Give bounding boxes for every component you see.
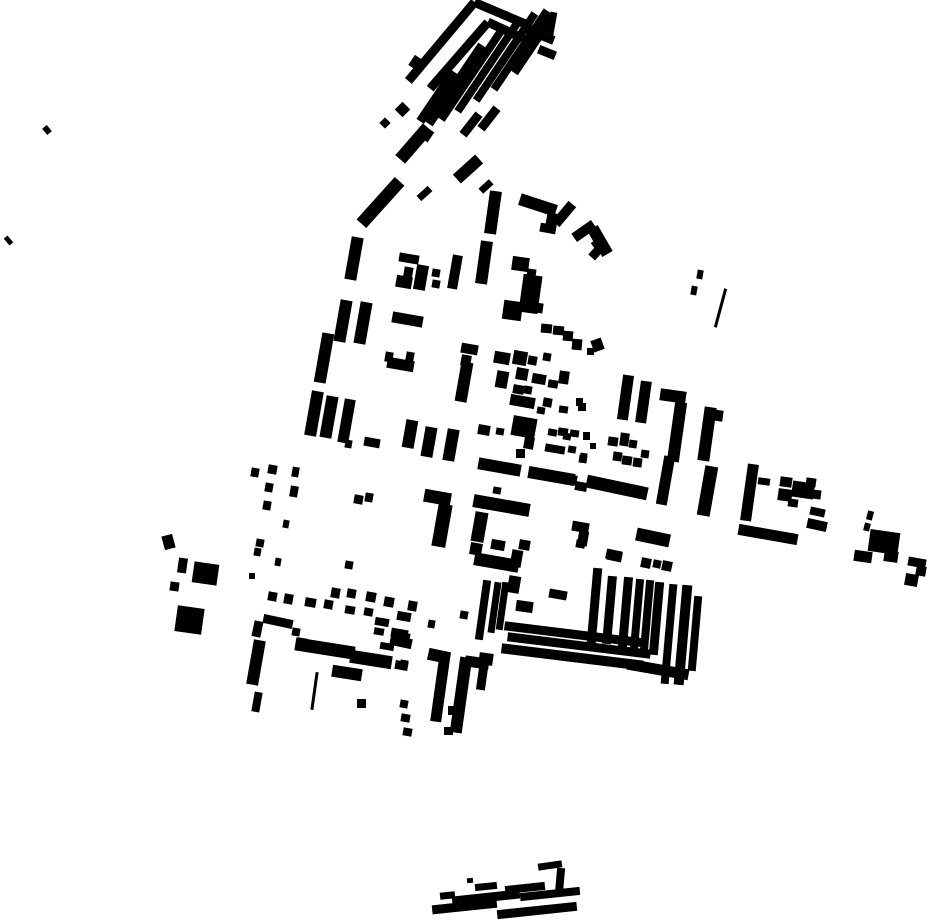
building-footprint	[512, 350, 528, 366]
building-footprint	[558, 370, 570, 384]
building-footprint	[448, 706, 457, 715]
building-footprint	[805, 477, 816, 487]
building-footprint	[779, 476, 792, 488]
building-footprint	[431, 268, 440, 277]
building-footprint	[621, 455, 632, 465]
building-footprint	[459, 610, 468, 619]
building-footprint	[283, 593, 294, 604]
building-footprint	[661, 560, 673, 572]
building-footprint	[559, 405, 569, 413]
building-footprint	[904, 573, 919, 587]
building-footprint	[518, 539, 531, 551]
building-footprint	[570, 429, 580, 437]
building-footprint	[383, 596, 395, 608]
building-footprint	[563, 331, 574, 342]
building-footprint	[444, 727, 453, 735]
building-footprint	[402, 727, 412, 736]
building-footprint	[542, 397, 552, 407]
building-footprint	[249, 573, 255, 579]
building-footprint	[523, 385, 532, 394]
building-footprint	[883, 550, 898, 563]
building-footprint	[510, 415, 537, 439]
building-footprint	[553, 326, 565, 336]
building-footprint	[523, 436, 535, 450]
building-footprint	[542, 352, 551, 361]
building-footprint	[323, 599, 333, 609]
building-footprint	[267, 591, 277, 601]
building-footprint	[400, 713, 410, 722]
building-footprint	[192, 561, 220, 585]
building-footprint	[512, 384, 524, 395]
building-footprint	[547, 379, 558, 389]
building-footprint	[365, 591, 377, 603]
building-footprint	[619, 432, 630, 446]
building-footprint	[557, 427, 568, 436]
building-footprint	[868, 529, 901, 555]
building-footprint	[262, 500, 271, 510]
building-footprint	[304, 597, 316, 608]
building-footprint	[587, 348, 594, 355]
building-footprint	[511, 256, 530, 272]
building-footprint	[346, 588, 356, 598]
building-footprint	[575, 539, 585, 548]
building-footprint	[536, 406, 545, 414]
building-footprint	[364, 492, 373, 502]
building-footprint	[607, 436, 618, 446]
building-footprint	[353, 494, 363, 504]
building-footprint	[477, 424, 491, 436]
building-footprint	[467, 878, 473, 884]
building-footprint	[583, 432, 590, 440]
building-footprint	[250, 467, 259, 477]
building-footprint	[640, 449, 649, 458]
building-footprint	[255, 538, 264, 547]
building-footprint	[640, 557, 652, 569]
building-footprint	[787, 498, 798, 507]
building-footprint	[567, 445, 576, 453]
building-footprint	[516, 449, 525, 458]
building-footprint	[579, 452, 587, 460]
building-footprint	[363, 607, 373, 616]
building-footprint	[431, 279, 440, 288]
building-footprint	[612, 451, 622, 461]
building-footprint	[628, 439, 637, 448]
building-footprint	[344, 439, 352, 448]
building-footprint	[169, 581, 179, 591]
building-footprint	[526, 268, 536, 277]
building-footprint	[267, 464, 277, 474]
building-footprint	[344, 560, 353, 569]
building-footprint	[515, 600, 533, 613]
building-footprint	[174, 605, 204, 635]
building-footprint	[495, 427, 504, 435]
building-footprint	[515, 367, 529, 381]
building-footprint	[576, 398, 583, 406]
building-footprint	[344, 605, 355, 615]
building-footprint	[330, 587, 341, 598]
building-footprint	[527, 355, 537, 365]
building-footprint	[291, 627, 300, 636]
building-footprint	[534, 302, 543, 313]
building-footprint	[811, 489, 821, 499]
building-footprint	[632, 457, 642, 467]
building-footprint	[652, 559, 661, 568]
figure-ground-map	[0, 0, 930, 924]
building-footprint	[541, 324, 553, 334]
building-footprint	[264, 482, 273, 492]
building-footprint	[407, 600, 418, 611]
building-footprint	[253, 547, 261, 556]
building-footprint	[427, 619, 435, 628]
map-canvas	[0, 0, 930, 924]
building-footprint	[590, 443, 596, 449]
building-footprint	[405, 351, 414, 361]
building-footprint	[502, 300, 523, 321]
map-background	[0, 0, 930, 924]
building-footprint	[399, 699, 408, 708]
building-footprint	[357, 699, 366, 708]
building-footprint	[711, 409, 723, 421]
building-footprint	[572, 339, 583, 351]
building-footprint	[492, 486, 501, 494]
